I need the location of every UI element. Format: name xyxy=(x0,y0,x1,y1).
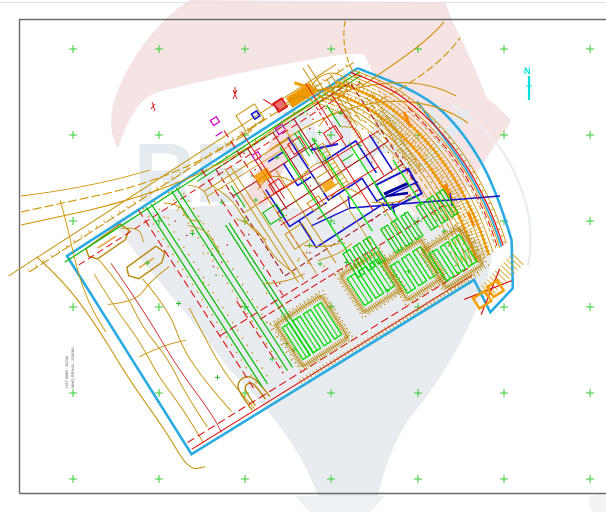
svg-text:LOT 5686 : 15240: LOT 5686 : 15240 xyxy=(64,355,69,388)
svg-text:N: N xyxy=(524,66,531,76)
svg-text:MHO GRN64 : 256180: MHO GRN64 : 256180 xyxy=(70,347,75,388)
